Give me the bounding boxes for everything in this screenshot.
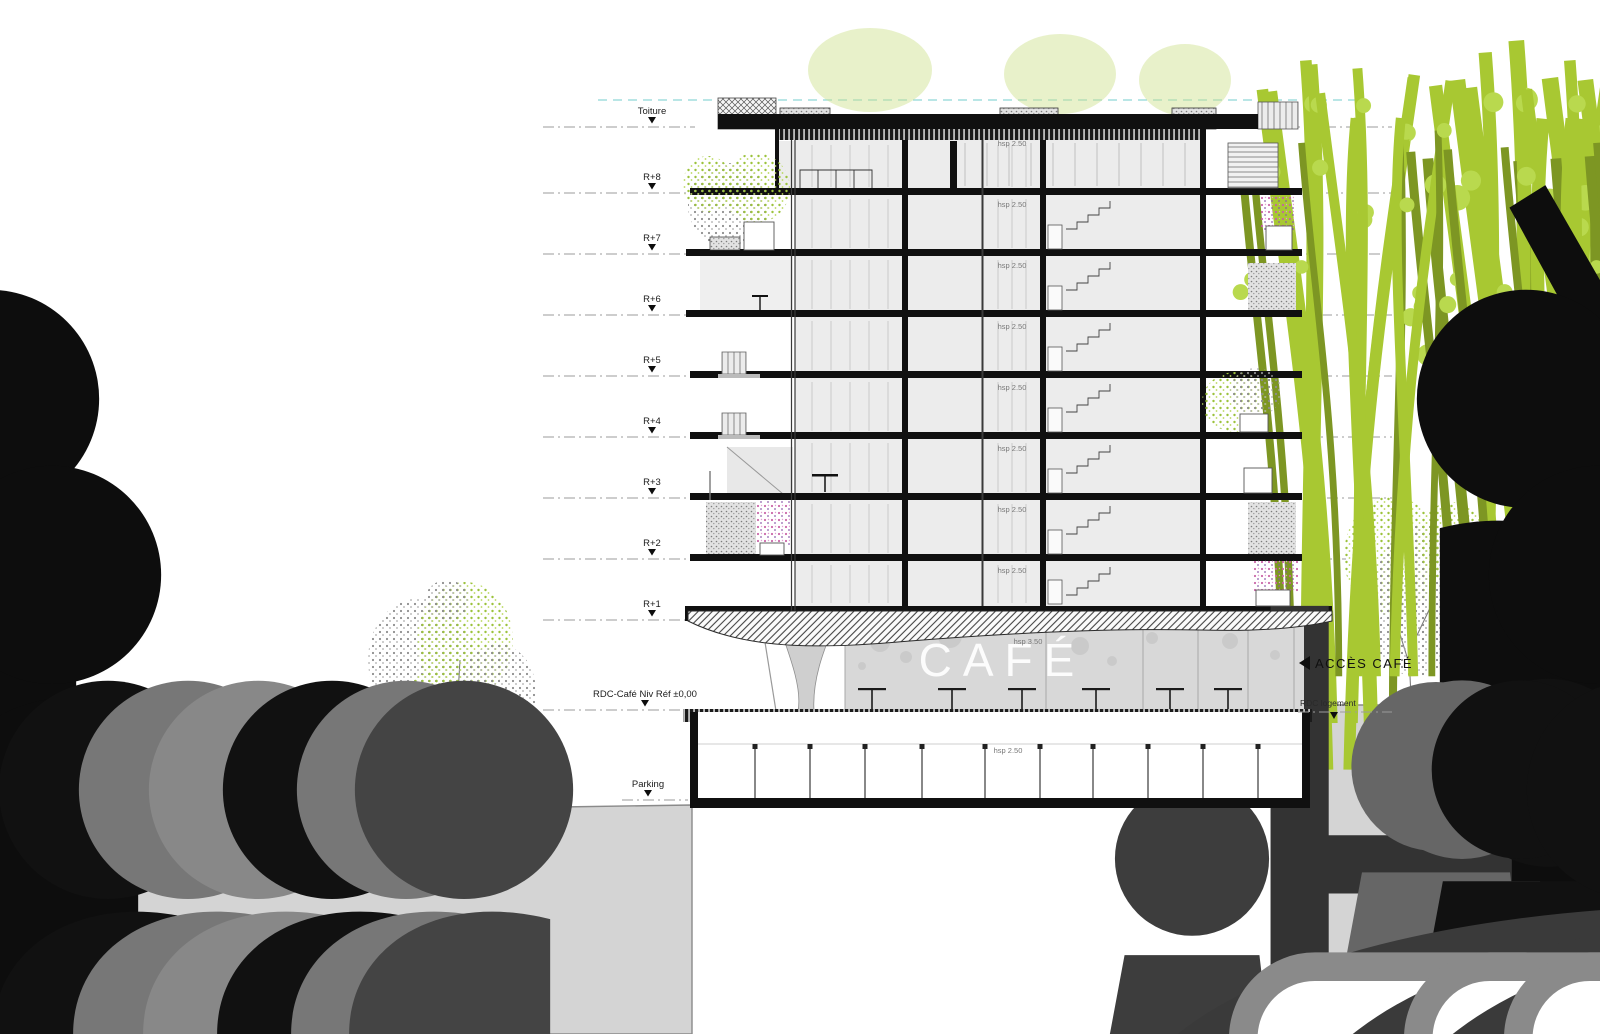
planter — [710, 237, 740, 250]
top-floor-wall — [950, 141, 957, 188]
level-marker-icon — [648, 366, 656, 373]
louver-block — [1228, 143, 1278, 188]
level-marker-icon — [648, 305, 656, 312]
cafe-table — [1214, 688, 1242, 690]
level-label: R+5 — [643, 355, 661, 366]
level-marker-icon — [648, 117, 656, 124]
core-door — [1048, 347, 1062, 371]
building-section: CAFÉ — [0, 28, 1600, 1034]
hsp-label: hsp 2.50 — [998, 261, 1027, 270]
grass-halo — [1004, 34, 1116, 114]
column-cap — [1201, 744, 1206, 749]
parking-box — [690, 712, 1310, 808]
level-label: R+8 — [643, 172, 661, 183]
hsp-label: hsp 2.50 — [994, 746, 1023, 755]
planter-box — [1256, 590, 1290, 606]
planter-box — [760, 543, 784, 555]
section-drawing-canvas: ToitureR+8R+7R+6R+5R+4R+3R+2R+1RDC-Café … — [0, 0, 1600, 1034]
level-label: R+2 — [643, 538, 661, 549]
level-label: R+1 — [643, 599, 661, 610]
planter-box — [1244, 468, 1272, 493]
core-door — [1048, 530, 1062, 554]
core-door — [1048, 286, 1062, 310]
column-cap — [983, 744, 988, 749]
textured-block — [706, 502, 756, 554]
roof-slab — [718, 114, 1258, 129]
level-marker-icon — [648, 610, 656, 617]
cafe-sign-text: CAFÉ — [919, 634, 1086, 686]
column-cap — [920, 744, 925, 749]
grass-halo — [808, 28, 932, 112]
hsp-label: hsp 2.50 — [998, 505, 1027, 514]
column-cap — [1146, 744, 1151, 749]
planter-box — [1266, 226, 1292, 250]
level-marker-icon — [648, 488, 656, 495]
textured-block — [1248, 502, 1296, 554]
core-door — [1048, 225, 1062, 249]
canopy-strut — [764, 636, 776, 711]
balcony-backwall — [700, 256, 793, 310]
flower-bed — [1252, 560, 1298, 592]
planter-box — [1240, 414, 1268, 432]
hsp-label: hsp 2.50 — [998, 383, 1027, 392]
level-marker-icon — [644, 790, 652, 797]
duct-block — [722, 413, 746, 435]
level-label: Parking — [632, 779, 664, 790]
cafe-table — [1156, 688, 1184, 690]
level-marker-icon — [641, 700, 649, 707]
column-cap — [753, 744, 758, 749]
planter-box — [744, 222, 774, 250]
level-label: Toiture — [638, 106, 667, 117]
bearing-wall — [902, 140, 908, 606]
hsp-label: hsp 2.50 — [998, 139, 1027, 148]
cafe-table — [1008, 688, 1036, 690]
level-label: R+6 — [643, 294, 661, 305]
level-label: R+3 — [643, 477, 661, 488]
cafe-table — [938, 688, 966, 690]
column-cap — [1256, 744, 1261, 749]
textured-block — [1248, 263, 1296, 310]
column-cap — [1091, 744, 1096, 749]
roof-parapet — [1258, 102, 1298, 129]
cafe-table — [1082, 688, 1110, 690]
rdc-logement-label: RDC logement — [1300, 698, 1356, 708]
level-marker-icon — [648, 427, 656, 434]
facade-right — [1200, 129, 1206, 621]
balcony-tree-foliage — [683, 156, 733, 212]
column-cap — [1038, 744, 1043, 749]
core-door — [1048, 469, 1062, 493]
hsp-label: hsp 2.50 — [998, 444, 1027, 453]
hsp-label: hsp 2.50 — [998, 322, 1027, 331]
parking-base-slab — [690, 798, 1310, 808]
tree-foliage — [425, 580, 469, 620]
hsp-label: hsp 2.50 — [998, 200, 1027, 209]
level-label: R+7 — [643, 233, 661, 244]
column-cap — [863, 744, 868, 749]
level-marker-icon — [648, 183, 656, 190]
grass-halo — [1139, 44, 1231, 116]
core-door — [1048, 580, 1062, 604]
hsp-label: hsp 3.50 — [1014, 637, 1043, 646]
hsp-label: hsp 2.50 — [998, 566, 1027, 575]
top-floor-interior — [777, 141, 1200, 188]
level-marker-icon — [648, 244, 656, 251]
flowering-plant — [756, 500, 790, 546]
core-wall — [1040, 140, 1046, 606]
level-marker-icon — [648, 549, 656, 556]
balcony-tree-foliage — [1230, 368, 1282, 416]
section-drawing: ToitureR+8R+7R+6R+5R+4R+3R+2R+1RDC-Café … — [0, 0, 1600, 1034]
level-label: R+4 — [643, 416, 661, 427]
roof-slab-ticks — [775, 129, 1205, 140]
cafe-table — [858, 688, 886, 690]
column-cap — [808, 744, 813, 749]
duct-block — [722, 352, 746, 374]
level-label: RDC-Café Niv Réf ±0,00 — [593, 689, 697, 700]
acces-cafe-label: ACCÈS CAFÉ — [1315, 656, 1413, 671]
core-door — [1048, 408, 1062, 432]
